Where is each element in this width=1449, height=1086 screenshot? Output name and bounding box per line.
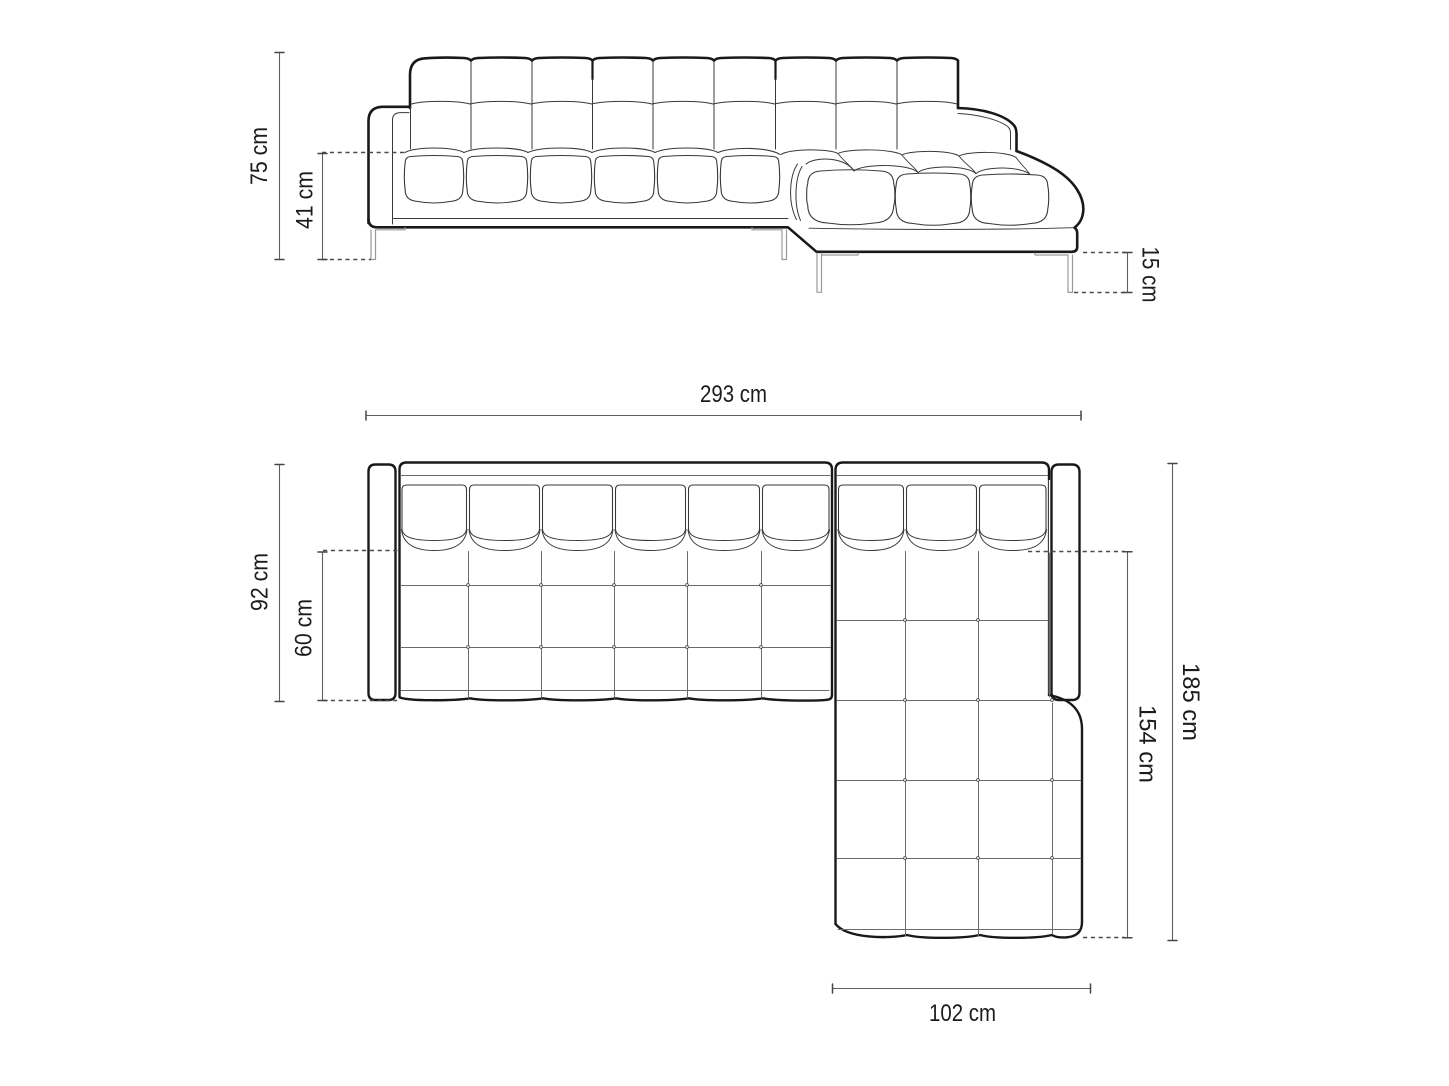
svg-text:60 cm: 60 cm [291, 599, 318, 657]
svg-text:154 cm: 154 cm [1134, 705, 1161, 783]
svg-text:41 cm: 41 cm [292, 171, 319, 229]
svg-text:15 cm: 15 cm [1137, 247, 1164, 303]
svg-text:75 cm: 75 cm [246, 127, 273, 185]
svg-text:293 cm: 293 cm [700, 381, 767, 408]
svg-text:102 cm: 102 cm [929, 1000, 996, 1027]
svg-text:185 cm: 185 cm [1177, 663, 1204, 741]
svg-text:92 cm: 92 cm [247, 553, 274, 611]
